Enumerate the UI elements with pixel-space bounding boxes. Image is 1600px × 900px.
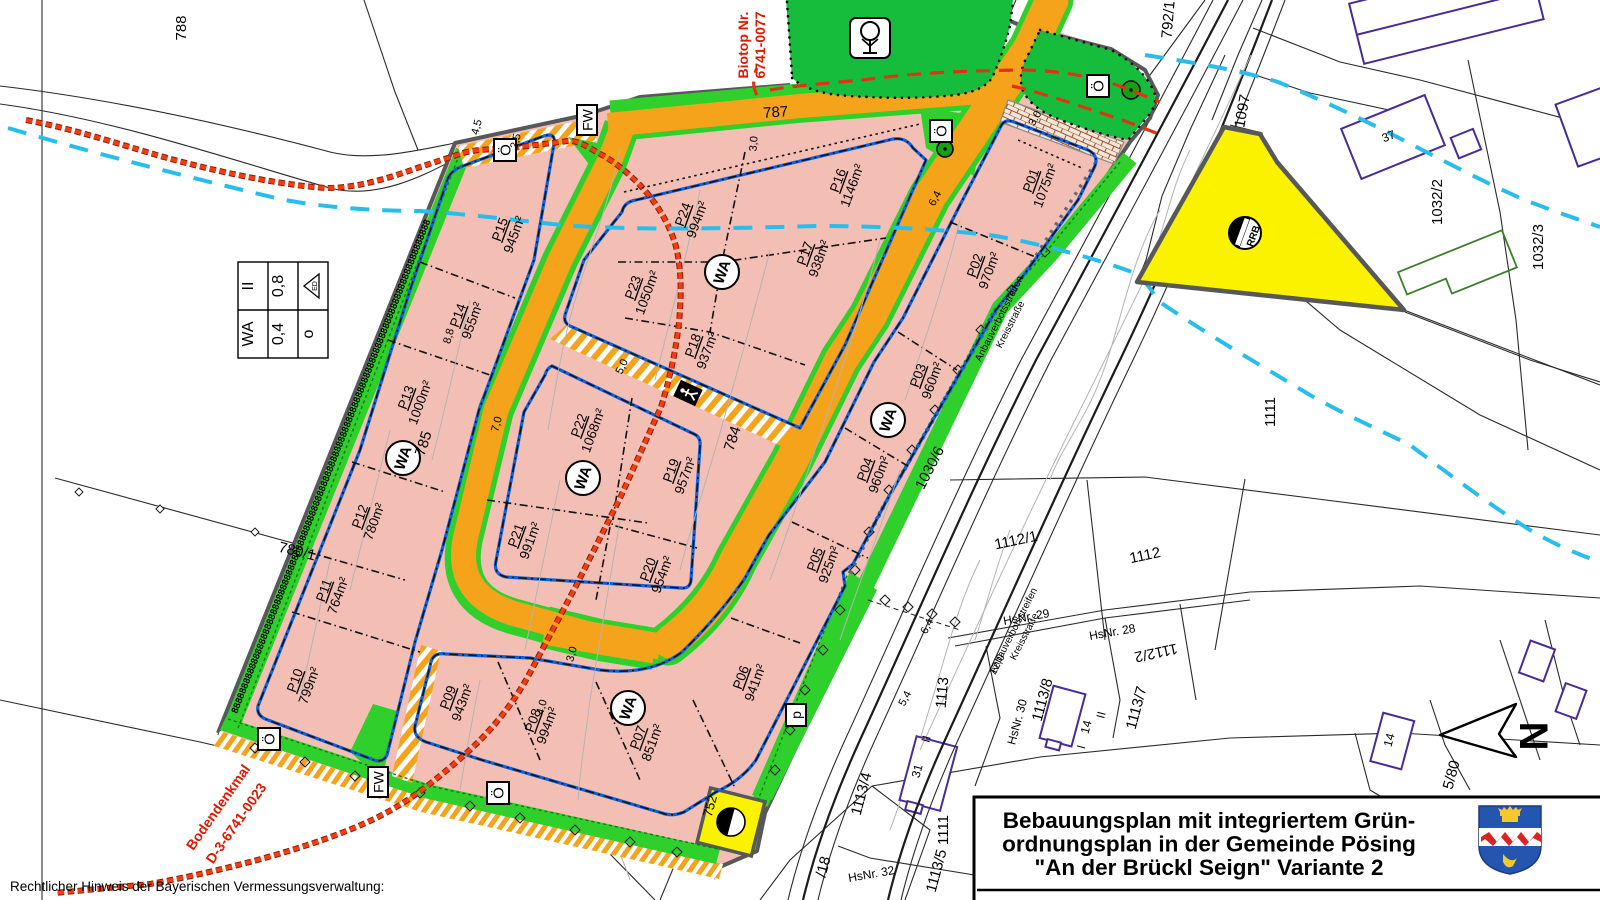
svg-text:6741-0077: 6741-0077: [752, 11, 768, 78]
svg-text:o: o: [300, 329, 317, 338]
svg-text:1111: 1111: [935, 815, 952, 845]
svg-text:1113: 1113: [933, 676, 953, 709]
svg-text:1032/3: 1032/3: [1530, 224, 1547, 270]
svg-text:Bebauungsplan mit integriertem: Bebauungsplan mit integriertem Grün-: [1003, 808, 1416, 833]
svg-text:Biotop Nr.: Biotop Nr.: [735, 12, 751, 79]
svg-text:N: N: [1511, 722, 1555, 751]
svg-text:788: 788: [173, 15, 190, 40]
svg-text:II: II: [240, 282, 257, 291]
svg-text:0,8: 0,8: [270, 275, 287, 297]
svg-text:3,0: 3,0: [747, 136, 760, 152]
svg-text:ED: ED: [312, 281, 319, 291]
svg-text:792/1: 792/1: [1158, 0, 1178, 39]
svg-text:FW: FW: [580, 108, 596, 131]
svg-text:Ö: Ö: [1090, 80, 1108, 92]
svg-text:Rechtlicher Hinweis der Bayeri: Rechtlicher Hinweis der Bayerischen Verm…: [10, 879, 384, 894]
svg-text:FW: FW: [371, 770, 387, 793]
svg-text:787: 787: [763, 103, 789, 122]
svg-text:Ö: Ö: [933, 125, 951, 137]
svg-text:WA: WA: [240, 321, 257, 347]
svg-text:1111: 1111: [1262, 397, 1279, 427]
svg-text:0,4: 0,4: [270, 323, 287, 345]
svg-text:Ö: Ö: [261, 733, 279, 745]
svg-text:1032/2: 1032/2: [1429, 179, 1446, 225]
svg-text:p: p: [788, 711, 804, 719]
svg-text:"An der Brückl Seign" Variante: "An der Brückl Seign" Variante 2: [1035, 855, 1384, 880]
svg-text:Ö: Ö: [490, 787, 508, 799]
svg-text:ordnungsplan in der Gemeinde P: ordnungsplan in der Gemeinde Pösing: [1002, 832, 1416, 857]
